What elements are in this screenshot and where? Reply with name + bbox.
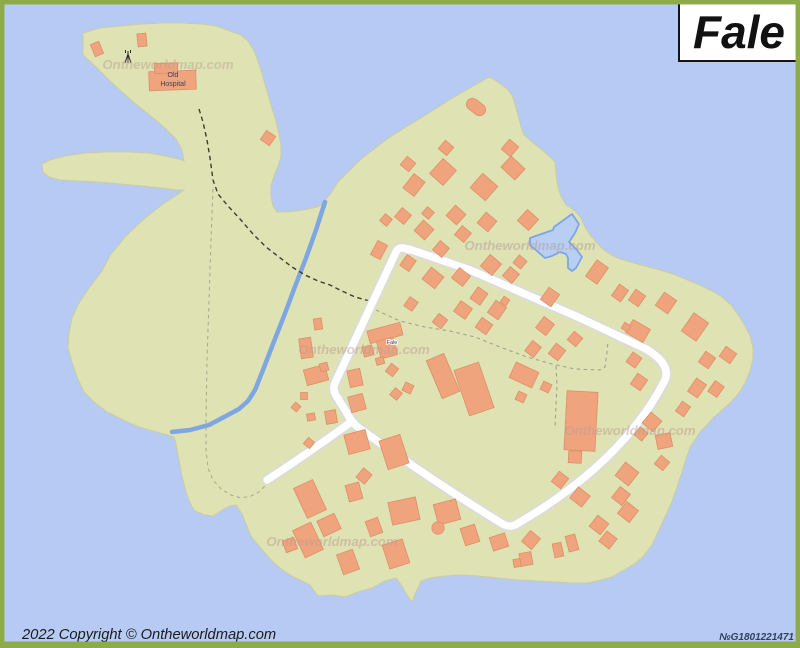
- svg-text:Ontheworldmap.com: Ontheworldmap.com: [102, 57, 233, 72]
- svg-text:2022 Copyright © Ontheworldmap: 2022 Copyright © Ontheworldmap.com: [21, 627, 276, 643]
- svg-text:Ontheworldmap.com: Ontheworldmap.com: [564, 423, 695, 438]
- svg-text:Hospital: Hospital: [160, 81, 186, 88]
- svg-text:Ontheworldmap.com: Ontheworldmap.com: [298, 342, 429, 357]
- svg-text:№G1801221471: №G1801221471: [719, 632, 794, 643]
- svg-text:Fale: Fale: [693, 6, 785, 58]
- svg-text:Ontheworldmap.com: Ontheworldmap.com: [464, 238, 595, 253]
- svg-text:Ontheworldmap.com: Ontheworldmap.com: [266, 534, 397, 549]
- svg-text:Old: Old: [168, 72, 179, 79]
